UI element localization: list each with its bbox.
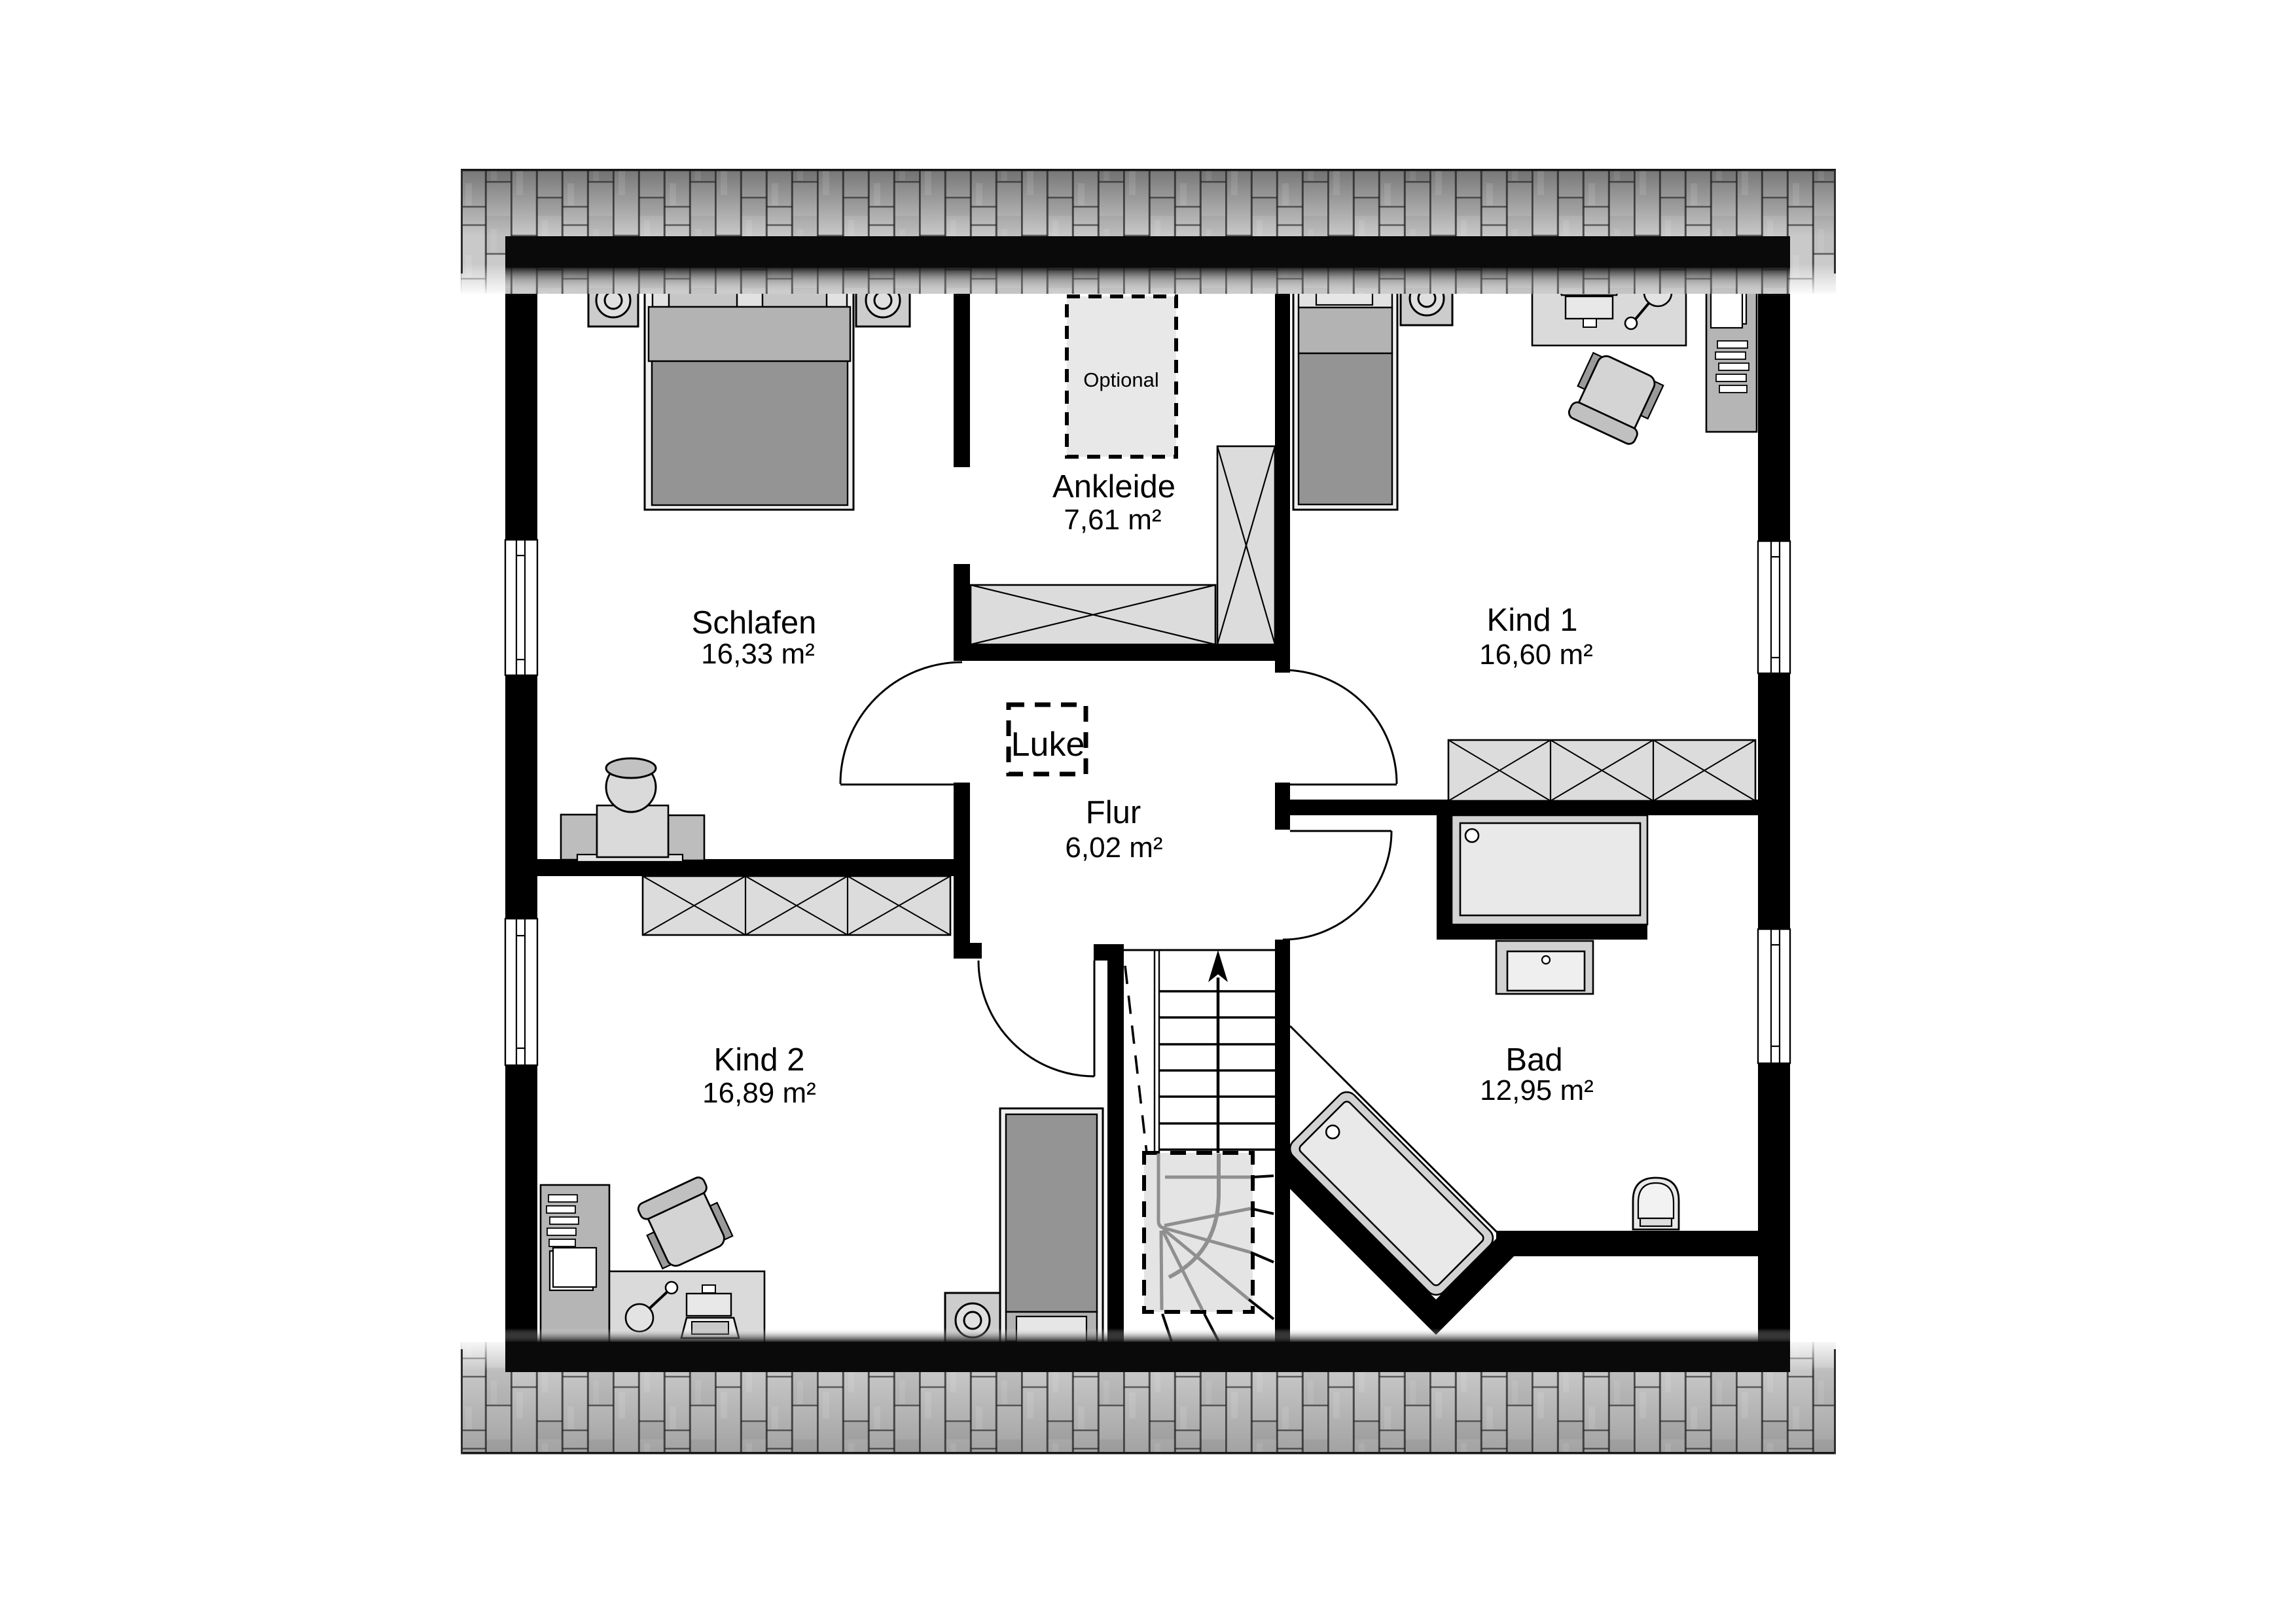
svg-text:Flur: Flur — [1086, 795, 1141, 830]
svg-text:12,95 m²: 12,95 m² — [1480, 1074, 1594, 1106]
svg-text:16,60 m²: 16,60 m² — [1479, 639, 1593, 671]
svg-text:16,33 m²: 16,33 m² — [701, 638, 815, 670]
svg-text:Kind 2: Kind 2 — [714, 1042, 805, 1078]
svg-text:Luke: Luke — [1011, 726, 1085, 764]
svg-text:16,89 m²: 16,89 m² — [702, 1077, 816, 1109]
svg-text:Ankleide: Ankleide — [1052, 469, 1175, 504]
svg-text:7,61 m²: 7,61 m² — [1064, 504, 1161, 536]
svg-text:Bad: Bad — [1505, 1042, 1562, 1078]
svg-text:Schlafen: Schlafen — [692, 605, 817, 641]
svg-text:Kind 1: Kind 1 — [1487, 603, 1578, 638]
svg-text:Optional: Optional — [1083, 368, 1158, 391]
svg-text:6,02 m²: 6,02 m² — [1065, 832, 1162, 864]
